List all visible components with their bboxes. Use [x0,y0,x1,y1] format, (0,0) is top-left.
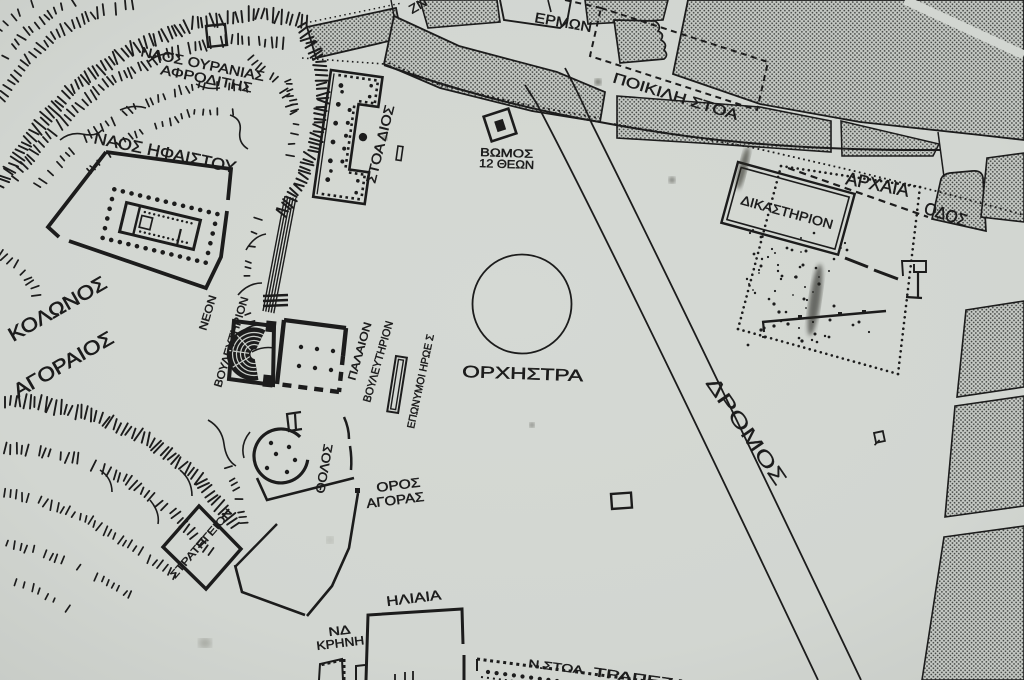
svg-text:12 ΘΕΩΝ: 12 ΘΕΩΝ [479,158,534,172]
